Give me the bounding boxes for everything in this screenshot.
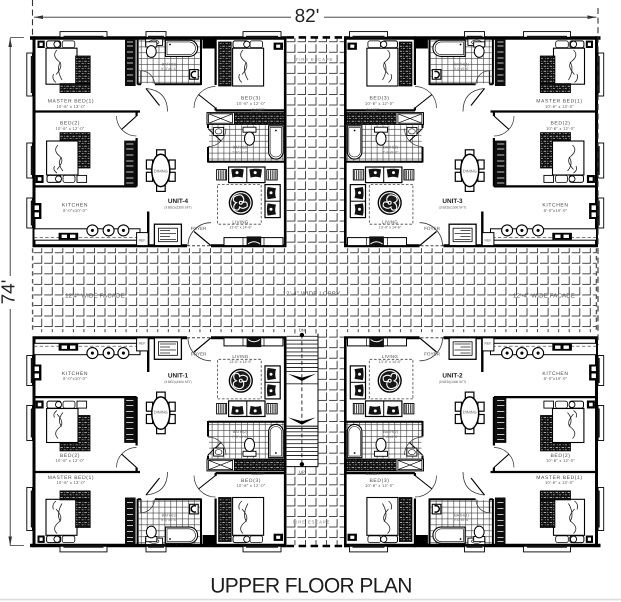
- svg-text:REF.: REF.: [139, 239, 146, 243]
- svg-text:7'-6"x5'-0": 7'-6"x5'-0": [232, 151, 249, 155]
- svg-text:10'-6" x 13'-0": 10'-6" x 13'-0": [545, 104, 574, 109]
- svg-text:8'-0"x10'-0": 8'-0"x10'-0": [544, 376, 568, 381]
- svg-text:10'-6" x 12'-0": 10'-6" x 12'-0": [546, 458, 575, 463]
- svg-text:LIVING: LIVING: [382, 354, 398, 359]
- svg-text:BATH(2): BATH(2): [233, 429, 249, 434]
- svg-text:7'-6"x5'-0": 7'-6"x5'-0": [232, 435, 249, 439]
- svg-text:74': 74': [0, 280, 20, 305]
- svg-text:13'-0" x 14'-6": 13'-0" x 14'-6": [379, 226, 402, 230]
- svg-text:7'-6"x5'-0": 7'-6"x5'-0": [382, 435, 399, 439]
- svg-text:7'-6"x5'-0": 7'-6"x5'-0": [382, 151, 399, 155]
- svg-text:BATH(2): BATH(2): [233, 145, 249, 150]
- svg-text:9'-0"x5'-6": 9'-0"x5'-6": [453, 67, 470, 71]
- svg-text:UP: UP: [299, 469, 305, 474]
- svg-text:8'-0"x10'-0": 8'-0"x10'-0": [63, 376, 87, 381]
- svg-text:DINING: DINING: [463, 409, 477, 414]
- svg-text:13'-0" x 14'-6": 13'-0" x 14'-6": [229, 360, 252, 364]
- svg-text:8'-0"x10'-0": 8'-0"x10'-0": [544, 208, 568, 213]
- svg-text:CLOSET: CLOSET: [366, 472, 380, 476]
- svg-text:DINING: DINING: [154, 169, 168, 174]
- svg-text:FOYER: FOYER: [424, 352, 441, 357]
- svg-text:(3 BED)(1300 SFT): (3 BED)(1300 SFT): [164, 380, 191, 384]
- svg-text:BATH(2): BATH(2): [383, 429, 399, 434]
- svg-text:FOYER: FOYER: [191, 352, 208, 357]
- svg-text:BATH(1): BATH(1): [162, 61, 178, 66]
- svg-text:10'-6" x 13'-0": 10'-6" x 13'-0": [545, 480, 574, 485]
- svg-text:REF.: REF.: [485, 341, 492, 345]
- svg-text:BATH(1): BATH(1): [454, 61, 470, 66]
- svg-text:UNIT-4: UNIT-4: [168, 198, 189, 205]
- svg-text:(3 BED)(1300 SFT): (3 BED)(1300 SFT): [164, 206, 191, 210]
- svg-text:BATH(2): BATH(2): [383, 145, 399, 150]
- svg-text:82': 82': [295, 6, 320, 27]
- svg-text:FIRE ESCAPE: FIRE ESCAPE: [296, 57, 333, 62]
- svg-text:UNIT-2: UNIT-2: [442, 373, 463, 380]
- svg-text:13'-0" x 14'-6": 13'-0" x 14'-6": [229, 226, 252, 230]
- svg-text:CLOSET: CLOSET: [251, 472, 265, 476]
- svg-text:10'-6" x 12'-0": 10'-6" x 12'-0": [365, 483, 394, 488]
- svg-text:BATH(1): BATH(1): [454, 512, 470, 517]
- svg-text:LIVING: LIVING: [232, 354, 248, 359]
- svg-text:(3 BED)(1300 SFT): (3 BED)(1300 SFT): [439, 380, 466, 384]
- svg-text:CLOSET: CLOSET: [251, 108, 265, 112]
- svg-text:DINING: DINING: [154, 409, 168, 414]
- svg-text:10'-6" x 12'-0": 10'-6" x 12'-0": [546, 126, 575, 131]
- svg-text:DINING: DINING: [463, 169, 477, 174]
- svg-text:9'-0"x5'-6": 9'-0"x5'-6": [161, 518, 178, 522]
- svg-text:9'-0"x5'-6": 9'-0"x5'-6": [161, 67, 178, 71]
- svg-text:UNIT-1: UNIT-1: [168, 373, 189, 380]
- svg-text:9'-0"x5'-6": 9'-0"x5'-6": [453, 518, 470, 522]
- svg-text:12'4" WIDE FACADE: 12'4" WIDE FACADE: [65, 293, 125, 300]
- svg-text:LIVING: LIVING: [382, 220, 398, 225]
- svg-text:REF.: REF.: [485, 239, 492, 243]
- svg-text:8'-0"x10'-0": 8'-0"x10'-0": [63, 208, 87, 213]
- svg-text:BATH(1): BATH(1): [162, 512, 178, 517]
- svg-text:UNIT-3: UNIT-3: [442, 198, 463, 205]
- svg-text:10'-6" x 12'-0": 10'-6" x 12'-0": [56, 126, 85, 131]
- svg-text:LIVING: LIVING: [232, 220, 248, 225]
- svg-text:10'-6" x 12'-0": 10'-6" x 12'-0": [56, 458, 85, 463]
- svg-text:UPPER FLOOR PLAN: UPPER FLOOR PLAN: [210, 575, 412, 598]
- svg-text:10'-6" x 13'-0": 10'-6" x 13'-0": [57, 104, 86, 109]
- svg-text:CLOSET: CLOSET: [366, 108, 380, 112]
- svg-text:DN: DN: [299, 327, 305, 332]
- svg-text:10'-6" x 12'-0": 10'-6" x 12'-0": [365, 101, 394, 106]
- svg-text:10'-6" x 12'-0": 10'-6" x 12'-0": [237, 101, 266, 106]
- svg-text:10'-6" x 13'-0": 10'-6" x 13'-0": [57, 480, 86, 485]
- svg-text:FIRE ESCAPE: FIRE ESCAPE: [293, 520, 330, 525]
- svg-text:12'-4" WIDE FACADE: 12'-4" WIDE FACADE: [513, 293, 575, 300]
- svg-text:REF.: REF.: [139, 341, 146, 345]
- svg-text:(3 BED)(1300 SFT): (3 BED)(1300 SFT): [439, 206, 466, 210]
- svg-text:FOYER: FOYER: [424, 226, 441, 231]
- svg-text:10'-6" x 12'-0": 10'-6" x 12'-0": [237, 483, 266, 488]
- svg-text:13'-0" x 14'-6": 13'-0" x 14'-6": [379, 360, 402, 364]
- svg-text:FOYER: FOYER: [191, 226, 208, 231]
- svg-text:12'-4" WIDE LOBBY: 12'-4" WIDE LOBBY: [283, 291, 341, 298]
